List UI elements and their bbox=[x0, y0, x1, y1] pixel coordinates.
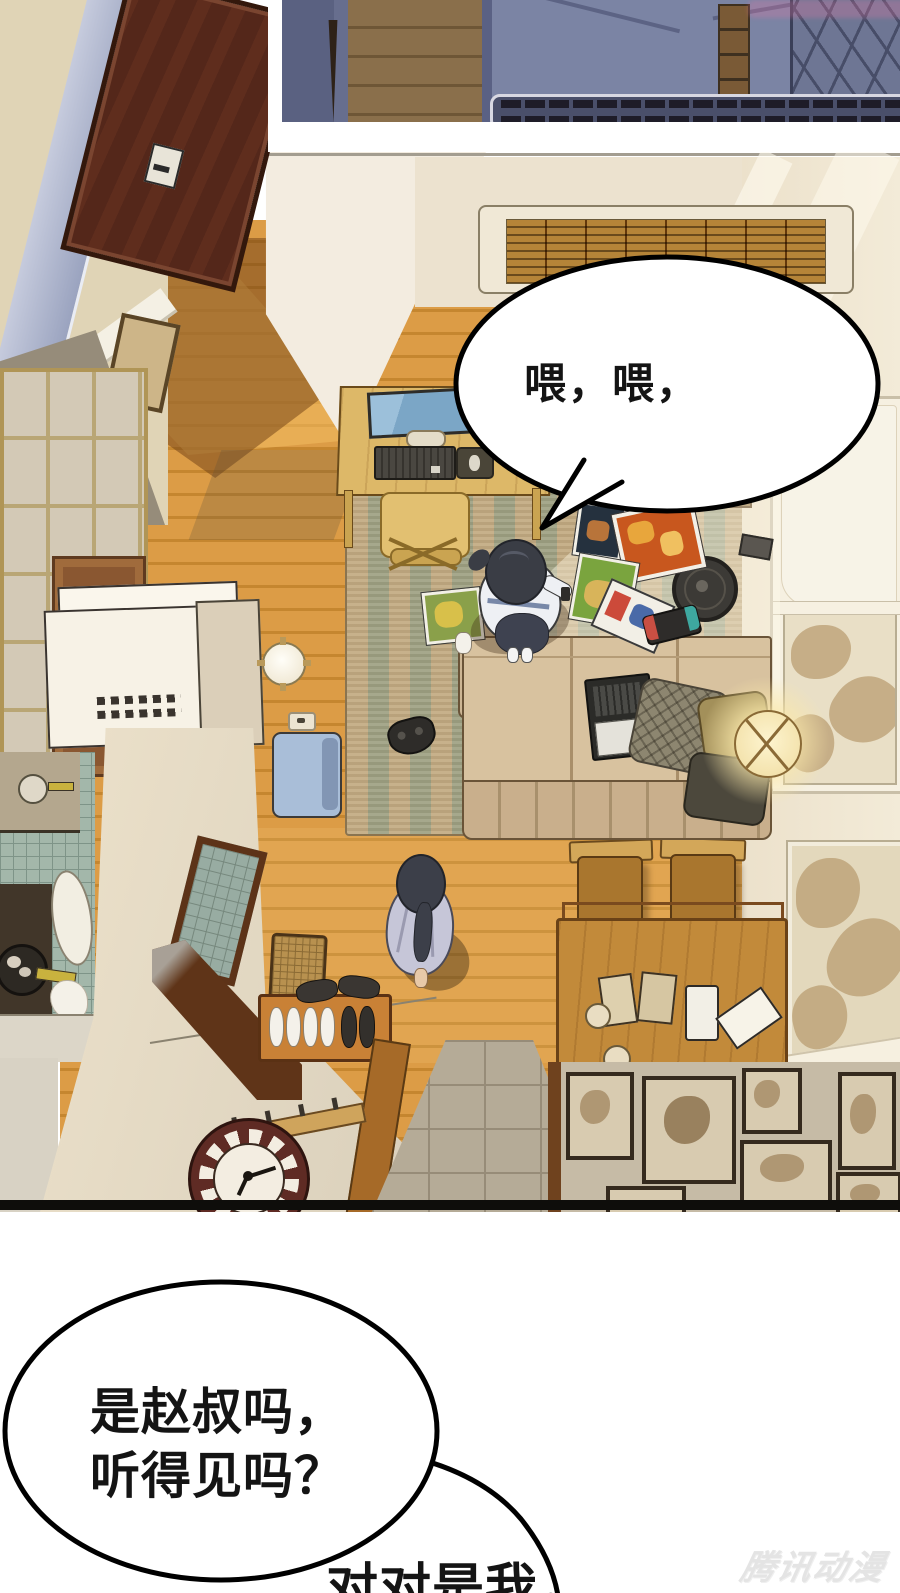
vent-slats bbox=[506, 219, 826, 284]
speech-line-1: 是赵叔吗， bbox=[90, 1380, 345, 1444]
radiator-slots-row bbox=[501, 116, 900, 122]
mousepad bbox=[456, 447, 494, 479]
phone-on-table bbox=[685, 985, 719, 1041]
photo-card bbox=[636, 971, 677, 1024]
bench-item-1 bbox=[602, 462, 642, 494]
character-feet bbox=[521, 647, 533, 663]
controller-stick bbox=[414, 726, 424, 736]
bed-post bbox=[718, 4, 750, 104]
magazine-art bbox=[626, 519, 656, 546]
controller-stick bbox=[397, 731, 407, 741]
picture-frame bbox=[838, 1072, 896, 1170]
kitchen-floor bbox=[0, 1014, 95, 1062]
radiator-slots-row bbox=[501, 100, 900, 108]
panel-border-line bbox=[0, 1200, 900, 1210]
kettle bbox=[18, 774, 48, 804]
fridge-body bbox=[44, 605, 211, 749]
upper-window-curtain bbox=[781, 405, 897, 607]
night-radiator bbox=[490, 94, 900, 122]
kitchen-area bbox=[0, 752, 95, 1062]
white-shoe bbox=[320, 1007, 335, 1047]
kitchen-sink bbox=[46, 868, 95, 969]
magazine-art bbox=[659, 529, 686, 557]
utensil bbox=[48, 782, 74, 791]
leaf-shadow bbox=[796, 858, 860, 928]
kitchen-counter bbox=[0, 752, 80, 833]
lower-window bbox=[788, 842, 900, 1072]
character-walking bbox=[372, 850, 472, 995]
ac-vent-grille bbox=[478, 205, 854, 294]
lamp-prong bbox=[280, 683, 286, 691]
window-mullion bbox=[773, 601, 900, 615]
floor-lamp-ball bbox=[734, 710, 802, 778]
white-shoe bbox=[269, 1007, 284, 1047]
speech-line-2: 听得见吗？ bbox=[90, 1444, 345, 1508]
picture-frame bbox=[566, 1072, 634, 1160]
cup bbox=[585, 1003, 611, 1029]
blue-bin bbox=[272, 732, 342, 818]
white-shoe bbox=[303, 1007, 318, 1047]
character-hair bbox=[485, 539, 547, 605]
mouse bbox=[469, 455, 480, 471]
magazine-art bbox=[586, 519, 611, 542]
night-wall-left bbox=[282, 0, 334, 122]
picture-frame bbox=[642, 1076, 736, 1184]
blanket-fold bbox=[524, 0, 680, 33]
vacuum-button bbox=[696, 580, 708, 592]
speech-text-top: 喂，喂， bbox=[524, 350, 700, 411]
wall-ceiling-line bbox=[258, 153, 900, 156]
speech-text-bottom: 对对是我， bbox=[326, 1546, 591, 1593]
fridge-vent-row2 bbox=[97, 708, 181, 719]
wall-edge-strip bbox=[548, 1062, 561, 1212]
tencent-comics-watermark: 腾讯动漫 bbox=[737, 1540, 891, 1589]
night-bedroom-panel-margin bbox=[268, 0, 900, 152]
white-shoe bbox=[286, 1007, 301, 1047]
character-standing bbox=[455, 535, 580, 665]
keyboard-key-dot bbox=[431, 466, 440, 473]
picture-frame bbox=[740, 1140, 832, 1206]
character-feet bbox=[507, 647, 519, 663]
switch-dot bbox=[297, 718, 305, 723]
keyboard bbox=[374, 446, 456, 480]
dark-shoe bbox=[341, 1006, 357, 1048]
faint-pink-watermark bbox=[748, 0, 900, 18]
desk-leg bbox=[344, 490, 353, 548]
light-switch bbox=[288, 712, 316, 731]
lamp-prong bbox=[257, 660, 265, 666]
apartment-overhead-panel bbox=[0, 0, 900, 1212]
bin-shade bbox=[322, 738, 338, 810]
hair-highlight bbox=[499, 551, 529, 570]
pan-food bbox=[7, 956, 21, 968]
lamp-prong bbox=[280, 637, 286, 645]
dining-table bbox=[556, 918, 788, 1084]
magazine-art bbox=[604, 590, 631, 621]
comic-page: 喂，喂， 是赵叔吗， 听得见吗？ 对对是我， 腾讯动漫 bbox=[0, 0, 900, 1593]
leaf-shadow bbox=[791, 625, 851, 679]
night-wood-wall bbox=[348, 0, 492, 122]
clock-center-dot bbox=[243, 1171, 253, 1181]
character-phone bbox=[561, 587, 570, 601]
door-handle-lever bbox=[153, 164, 170, 174]
fridge-side-panel bbox=[195, 599, 264, 747]
night-bedroom-panel bbox=[282, 0, 900, 122]
fridge-vent-row1 bbox=[97, 694, 181, 705]
pan-food bbox=[19, 967, 31, 977]
character-foot bbox=[414, 968, 428, 988]
desk-leg bbox=[532, 488, 541, 540]
ceiling-lamp bbox=[262, 642, 306, 686]
lamp-prong bbox=[303, 660, 311, 666]
speech-text-bottom-left: 是赵叔吗， 听得见吗？ bbox=[90, 1380, 345, 1508]
picture-frame bbox=[742, 1068, 802, 1134]
envelope bbox=[715, 986, 783, 1049]
